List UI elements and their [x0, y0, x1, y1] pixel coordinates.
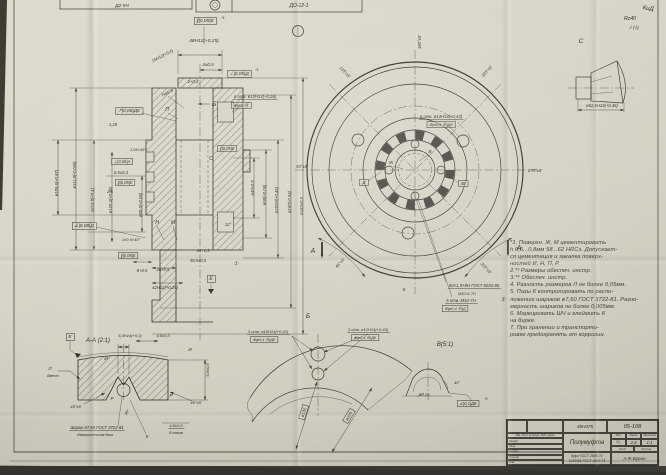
svg-text:М10×1-7Н: М10×1-7Н	[458, 292, 476, 296]
svg-text:42Н12(+0,25): 42Н12(+0,25)	[152, 285, 178, 290]
svg-text:К: К	[146, 434, 149, 439]
svg-text:КиД: КиД	[642, 5, 655, 13]
roughness-checks: √ (√)	[629, 25, 639, 30]
svg-text:⊕|ø0,5 Ⓜ|ДЕ: ⊕|ø0,5 Ⓜ|ДЕ	[429, 122, 453, 127]
note-ref-2: ①	[501, 297, 506, 303]
svg-text:45°: 45°	[454, 381, 460, 385]
svg-text:↗|0,08|ДЕ: ↗|0,08|ДЕ	[118, 108, 141, 114]
titleblock-mass: 2,8	[626, 439, 641, 446]
svg-text:48+1,5: 48+1,5	[197, 248, 211, 253]
svg-text:ø105,6(+0,87): ø105,6(+0,87)	[54, 169, 59, 196]
dim-20: 20+0,5	[156, 267, 171, 272]
stamp-left-code: Д2-5Ч	[114, 3, 129, 9]
angle-180: 180°±5′	[417, 35, 422, 49]
titleblock-material-line2: 12ХН3А ГОСТ 4543-71	[569, 459, 606, 463]
titleblock-designation: 05-108	[607, 420, 658, 433]
dim-12deg: 12°	[225, 222, 232, 227]
label-r2: Р	[169, 393, 173, 398]
dim-45-05: 4,5±0,5	[168, 423, 184, 428]
dim-48-box: 48	[458, 181, 468, 187]
svg-text:ø40±0,5: ø40±0,5	[250, 180, 255, 196]
label-zh: Ж	[388, 160, 394, 166]
svg-text:30°: 30°	[124, 409, 131, 416]
title-block: 45Н475 05-108 Изм. Лист № докум. Подп. Д…	[506, 419, 659, 466]
dim-4: 4±0,5	[202, 62, 214, 67]
titleblock-litera: О₁	[611, 439, 626, 446]
dim-d225: ø225	[343, 408, 356, 423]
drawing-canvas: Д2-5ЧДО-12-1∥|0,05|Е*148Н12(+0,25)4±0,52…	[0, 0, 666, 475]
dim-45-03: 4,5±0,3	[156, 333, 170, 338]
svg-text:ø58(+0,06): ø58(+0,06)	[262, 184, 267, 205]
dim-3otv12: 3 отв. ø12Н14(+0,43)	[347, 327, 390, 332]
dim-8: 8+0,5	[137, 268, 148, 273]
dim-6otv-13: 6 отв. ø13Н14(+0,43)	[419, 114, 464, 119]
svg-text:∥|0,05|Е: ∥|0,05|Е	[196, 18, 214, 24]
dim-3otv10: 3 отв. ø10Н14(+0,43)	[247, 329, 290, 334]
svg-text:4,5±0,5: 4,5±0,5	[169, 423, 183, 428]
svg-text:*1: *1	[484, 397, 487, 401]
angle-315: 315°±5′	[479, 261, 492, 275]
titleblock-spare-cell2	[527, 420, 563, 433]
label-n: Н	[155, 220, 159, 226]
frame-pos-b1: ⊕|ø0,4 Ⓜ|ДЕ	[251, 337, 278, 343]
label-aa: А-А (2:1)	[85, 338, 110, 344]
svg-text:ø111,8(-0,045): ø111,8(-0,045)	[72, 161, 77, 189]
svg-text:45°±5′: 45°±5′	[70, 404, 81, 409]
svg-text:⊕|ø0,4 Ⓜ|ДЕ: ⊕|ø0,4 Ⓜ|ДЕ	[354, 335, 377, 340]
dim-65: 6,5±0,5	[205, 363, 210, 377]
label-r1: Р	[110, 396, 114, 401]
dim-45deg-v: 45°	[454, 381, 460, 385]
svg-text:48Н12(+0,25): 48Н12(+0,25)	[189, 38, 219, 44]
svg-text:Rz40: Rz40	[624, 16, 636, 22]
svg-text:⊥|0,06|А: ⊥|0,06|А	[114, 159, 131, 164]
svg-text:∥|0,05|Е: ∥|0,05|Е	[219, 146, 234, 151]
svg-text:Измерительная база: Измерительная база	[77, 433, 113, 437]
svg-text:20+0,5: 20+0,5	[156, 267, 171, 272]
angle-225: 225°±5′	[480, 64, 494, 79]
svg-text:90°±5′: 90°±5′	[296, 164, 308, 169]
svg-text:5,3Н14(+0,3): 5,3Н14(+0,3)	[118, 333, 142, 338]
dim-2: 2+0,3	[187, 79, 199, 84]
svg-text:⊕|ø0,4 Ⓜ|Д: ⊕|ø0,4 Ⓜ|Д	[444, 306, 466, 311]
svg-text:*1: *1	[221, 16, 225, 20]
titleblock-part-name: Полумуфта	[563, 433, 611, 452]
note-ref-1: ①	[234, 261, 239, 267]
frame-runout: ↗|0,08|ДЕ	[116, 108, 143, 115]
svg-text:Р: Р	[169, 393, 173, 398]
label-k: К	[146, 434, 149, 439]
note-8pazov: 8 пазов	[169, 430, 183, 435]
svg-text:R0,29: R0,29	[419, 392, 430, 397]
svg-text:1,25: 1,25	[109, 122, 118, 127]
photographed-drawing-sheet: Д2-5ЧДО-12-1∥|0,05|Е*148Н12(+0,25)4±0,52…	[0, 0, 666, 475]
dim-85: 8,5±0,3	[114, 170, 129, 175]
frame-pos-b2: ⊕|ø0,4 Ⓜ|ДЕ	[352, 335, 379, 341]
footnote-1b: *1	[255, 68, 259, 72]
dim-30deg: 30°	[124, 409, 131, 416]
svg-text:45°±5′: 45°±5′	[334, 257, 346, 269]
dim-d58: ø58(+0,06)	[262, 184, 267, 205]
svg-text:Шарик ø7,60 ГОСТ 3722-81: Шарик ø7,60 ГОСТ 3722-81	[70, 425, 123, 430]
svg-text:6,5±0,5: 6,5±0,5	[205, 363, 210, 377]
svg-text:В(5:1): В(5:1)	[437, 342, 453, 348]
dim-45deg-r: 45°±5′	[190, 400, 201, 405]
view-b	[247, 334, 412, 452]
dim-d40: ø40±0,5	[250, 180, 255, 196]
dim-45deg-l: 45°±5′	[70, 404, 81, 409]
label-l: Л	[47, 366, 52, 371]
svg-text:15Н12(+0,4): 15Н12(+0,4)	[151, 48, 175, 64]
svg-text:∠|0,1|ДЕ: ∠|0,1|ДЕ	[459, 401, 477, 406]
frame-par-e3: ∥|0,05|Е	[115, 180, 134, 186]
dim-42h12: 42Н12(+0,25)	[152, 285, 178, 290]
svg-text:8,5±0,3: 8,5±0,3	[114, 170, 129, 175]
svg-text:3 отв. ø10Н14(+0,43): 3 отв. ø10Н14(+0,43)	[248, 329, 289, 334]
svg-text:Б: Б	[212, 101, 216, 108]
titleblock-approved-code: 45Н475	[563, 420, 607, 433]
section-dimensions	[52, 26, 308, 334]
svg-text:∥|0,05|Е: ∥|0,05|Е	[120, 253, 135, 258]
dim-d162: ø162±0,5	[299, 197, 304, 215]
frame-ang-d: ∠|0,08|Д	[72, 223, 96, 230]
svg-text:√ (√): √ (√)	[629, 25, 639, 30]
dim-d1204: ø120,4(+0,46)	[108, 186, 113, 213]
frame-perp-d: ⊥|0,05|Д	[227, 71, 251, 78]
frame-par-e4: ∥|0,05|Е	[118, 253, 137, 259]
label-p: П	[165, 107, 169, 113]
stamp-box-code: ДО-12-1	[288, 3, 308, 9]
note-base: Измерительная база	[77, 433, 113, 437]
frame-par-e2: ∥|0,05|Е	[217, 146, 236, 152]
svg-text:12°: 12°	[225, 222, 232, 227]
svg-text:ø120,4(+0,46): ø120,4(+0,46)	[108, 186, 113, 213]
svg-text:А: А	[310, 248, 316, 255]
angle-270: 270°±5′	[527, 168, 542, 173]
roughness-general: Rz40	[624, 16, 636, 22]
svg-text:225°±5′: 225°±5′	[480, 64, 494, 79]
svg-text:①: ①	[234, 261, 239, 267]
angle-135: 135°±5′	[338, 65, 351, 79]
titleblock-row-utv: Утв.	[507, 460, 563, 465]
label-c-view: С	[579, 38, 584, 45]
svg-text:ø160(-0,04): ø160(-0,04)	[287, 190, 292, 212]
svg-text:⊥|0,05|Д: ⊥|0,05|Д	[229, 71, 249, 77]
label-v: В	[428, 149, 432, 155]
dim-125: 1,25	[109, 122, 118, 127]
svg-text:И: И	[188, 347, 192, 352]
angle-45: 45°±5′	[334, 257, 346, 269]
svg-text:180°±5′: 180°±5′	[417, 35, 422, 49]
svg-text:Ж: Ж	[388, 160, 394, 166]
titleblock-signature: А.Ф.Бурин	[611, 452, 658, 465]
svg-text:*1: *1	[255, 68, 259, 72]
dim-d1148: ø114,8(+0,4)	[90, 188, 95, 212]
view-v	[402, 362, 472, 401]
svg-text:48: 48	[460, 181, 466, 186]
svg-text:Н: Н	[155, 220, 159, 226]
svg-text:135°±5′: 135°±5′	[338, 65, 351, 79]
svg-text:П: П	[165, 107, 169, 113]
dim-d605: ø60,5(+0,06)	[138, 192, 143, 217]
svg-text:1±0,5×45°: 1±0,5×45°	[122, 237, 141, 242]
svg-text:270°±5′: 270°±5′	[527, 168, 542, 173]
frame-pos-m10: ⊕|ø0,4 Ⓜ|Д	[442, 306, 468, 312]
svg-text:8+0,5: 8+0,5	[137, 268, 148, 273]
footnote-1a: *1	[221, 16, 225, 20]
angle-90: 90°±5′	[296, 164, 308, 169]
svg-text:0: 0	[403, 287, 406, 292]
svg-text:2+0,3: 2+0,3	[187, 79, 199, 84]
titleblock-spare-cell	[507, 420, 527, 433]
svg-text:⊕|ø0,4 Ⓜ|ДЕ: ⊕|ø0,4 Ⓜ|ДЕ	[253, 337, 276, 342]
svg-text:315°±5′: 315°±5′	[479, 261, 492, 275]
svg-text:8 пазов: 8 пазов	[169, 430, 183, 435]
dim-385: 38,5±0,5	[190, 258, 207, 263]
frame-pos-1: ⊕|ø1 Ⓜ	[232, 103, 252, 109]
dim-48h12: 48Н12(+0,25)	[189, 38, 219, 44]
svg-text:45°±5′: 45°±5′	[190, 400, 201, 405]
svg-text:38,5±0,5: 38,5±0,5	[190, 258, 207, 263]
svg-text:Р: Р	[110, 396, 114, 401]
dim-1x45: 1±0,5×45°	[122, 237, 141, 242]
frame-parallel-e-top: ∥|0,05|Е	[194, 18, 216, 25]
dim-d105: ø105Н(+0,46)	[274, 186, 279, 213]
titleblock-material: Круг ГОСТ 2590-71 12ХН3А ГОСТ 4543-71	[563, 452, 611, 465]
note-ball: Шарик ø7,60 ГОСТ 3722-81	[69, 425, 124, 430]
dim-105x45: 1,05×45°	[130, 147, 147, 152]
frame-pos-13: ⊕|ø0,5 Ⓜ|ДЕ	[427, 122, 455, 128]
datum-e-flag2: Е	[66, 334, 74, 341]
svg-text:5 отв. М10-7Н: 5 отв. М10-7Н	[446, 298, 476, 303]
label-v-view: В(5:1)	[437, 342, 453, 348]
svg-text:В: В	[428, 149, 432, 155]
svg-text:А-А (2:1): А-А (2:1)	[85, 338, 110, 344]
svg-text:ø162±0,5: ø162±0,5	[299, 197, 304, 215]
technical-notes: *1. Поверхн. Ж, М цементировать h 0,5...…	[510, 240, 662, 339]
note-thread: М10×1-7Н	[458, 292, 476, 296]
dim-d160: ø160(-0,04)	[287, 190, 292, 212]
pencil-mark: КиД	[642, 5, 655, 13]
dim-53h14: 5,3Н14(+0,3)	[118, 333, 142, 338]
svg-text:4,5±0,3: 4,5±0,3	[156, 333, 170, 338]
svg-text:1,05×45°: 1,05×45°	[130, 147, 147, 152]
svg-text:Вмест: Вмест	[47, 374, 59, 378]
svg-text:С: С	[209, 156, 213, 162]
section-aa-view	[58, 341, 208, 434]
svg-text:3 отв. ø12Н14(+0,43): 3 отв. ø12Н14(+0,43)	[348, 327, 389, 332]
dim-d626: ø62,6Н13(+0,46)	[586, 103, 618, 108]
dim-6otv-10: 6 отв. ø10Н14(+0,26)	[233, 94, 278, 99]
svg-text:ø114,8(+0,4): ø114,8(+0,4)	[90, 188, 95, 212]
svg-text:4±0,5: 4±0,5	[202, 62, 214, 67]
datum-e-flag: Е	[207, 276, 215, 283]
svg-text:ø60,5(+0,06): ø60,5(+0,06)	[138, 192, 143, 217]
frame-ang-de: ∠|0,1|ДЕ	[457, 401, 479, 407]
svg-text:ø62,6Н13(+0,46): ø62,6Н13(+0,46)	[586, 103, 618, 108]
svg-text:ДО-12-1: ДО-12-1	[288, 3, 308, 9]
svg-text:6 отв. ø10Н14(+0,26): 6 отв. ø10Н14(+0,26)	[234, 94, 277, 99]
note-spline: 50×1,5×9Н ГОСТ 6033-80	[448, 283, 501, 288]
svg-text:∠|0,08|Д: ∠|0,08|Д	[74, 223, 94, 229]
dim-r029: R0,29	[419, 392, 430, 397]
svg-text:Д2-5Ч: Д2-5Ч	[114, 3, 129, 9]
datum-d-flag: Д	[359, 180, 368, 186]
dim-d135: ø135	[299, 405, 309, 420]
section-a-left: А	[310, 248, 316, 255]
svg-text:6 отв. ø13Н14(+0,43): 6 отв. ø13Н14(+0,43)	[420, 114, 463, 119]
label-vmest: Вмест	[47, 374, 59, 378]
svg-text:Б: Б	[306, 313, 310, 320]
dim-15h12: 15Н12(+0,4)	[151, 48, 175, 64]
frame-perp-a: ⊥|0,06|А	[112, 159, 133, 165]
note-5otv: 5 отв. М10-7Н	[445, 298, 477, 303]
svg-text:①: ①	[501, 297, 506, 303]
dim-48: 48+1,5	[197, 248, 211, 253]
svg-text:Л: Л	[47, 366, 52, 371]
dim-d1118: ø111,8(-0,045)	[72, 161, 77, 189]
view-arrow-b: Б	[212, 101, 216, 108]
label-b-view: Б	[306, 313, 310, 320]
angle-0: 0	[403, 287, 406, 292]
titleblock-scale: 1:1	[641, 439, 658, 446]
svg-text:⊕|ø1 Ⓜ: ⊕|ø1 Ⓜ	[234, 103, 250, 108]
footnote-1c: *1	[484, 397, 487, 401]
svg-text:∥|0,05|Е: ∥|0,05|Е	[117, 180, 132, 185]
svg-text:ø105Н(+0,46): ø105Н(+0,46)	[274, 186, 279, 213]
label-s: С	[209, 156, 213, 162]
dim-d1056: ø105,6(+0,87)	[54, 169, 59, 196]
svg-text:50×1,5×9Н ГОСТ 6033-80: 50×1,5×9Н ГОСТ 6033-80	[449, 283, 500, 288]
label-i2: И	[188, 347, 192, 352]
titleblock-revision-zone: Изм. Лист № докум. Подп. Дата Разраб. Пр…	[507, 433, 563, 465]
svg-text:С: С	[579, 38, 584, 45]
front-view	[295, 50, 537, 297]
